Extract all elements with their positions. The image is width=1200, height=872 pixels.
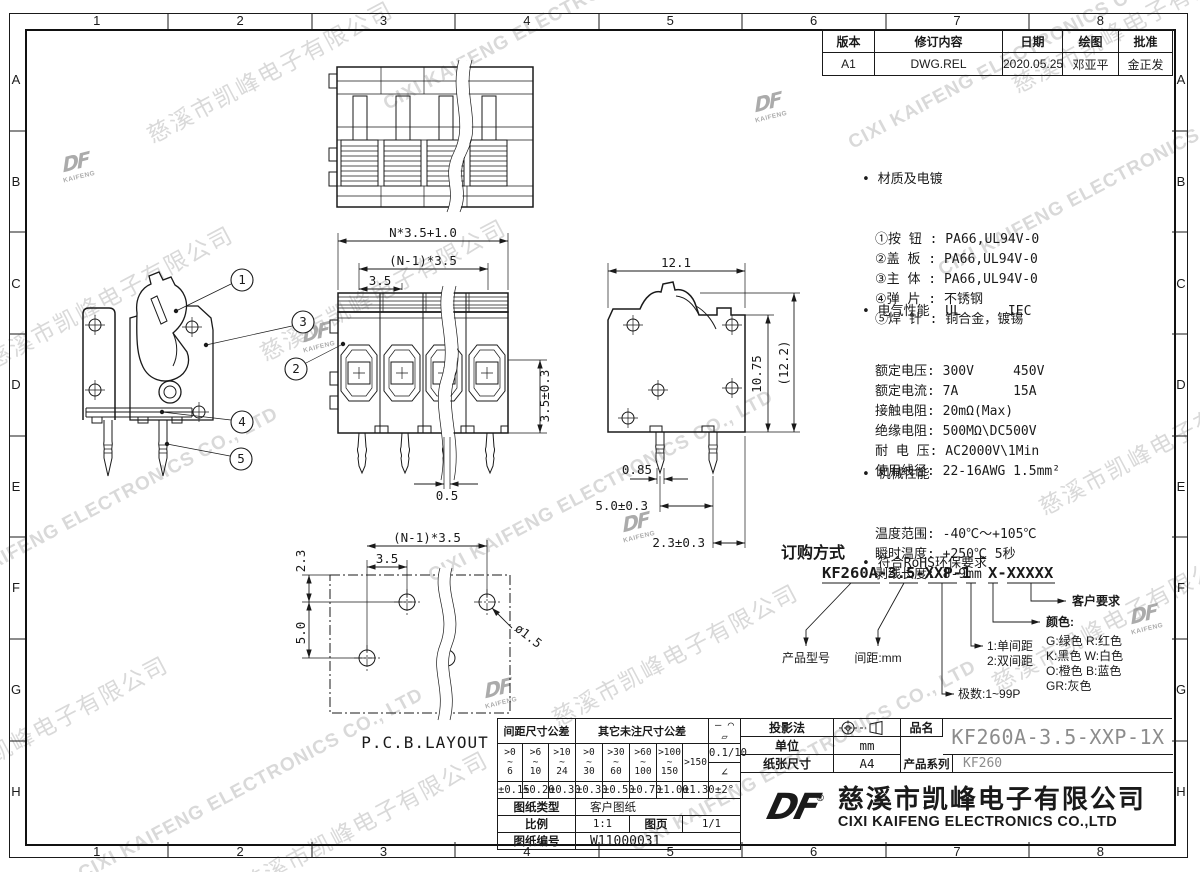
zone-col: 6 — [742, 12, 885, 28]
sheet-value: 1/1 — [683, 816, 741, 833]
part-name-label: 品名 — [901, 719, 943, 737]
zone-col: 2 — [168, 843, 311, 859]
range-cell: >100 ~ 150 — [657, 744, 683, 782]
zone-row: G — [8, 639, 24, 741]
part-number: KF260A-3.5-XXP-1X — [943, 719, 1173, 755]
zone-col: 3 — [312, 12, 455, 28]
grid-letters-left: ABCDEFGH — [8, 29, 24, 842]
mechanical-title: • 机械性能 — [862, 465, 1036, 485]
tol-value: ±0.30 — [576, 782, 603, 799]
zone-row: A — [1173, 29, 1189, 131]
zone-col: 5 — [599, 12, 742, 28]
paper-size-label: 纸张尺寸 — [741, 755, 834, 773]
first-angle-projection-icon — [838, 720, 896, 736]
range-cell: >0 ~ 30 — [576, 744, 603, 782]
range-cell: >10 ~ 24 — [549, 744, 576, 782]
rev-header-date: 日期 — [1003, 30, 1063, 53]
doc-type-value: 客户图纸 — [576, 799, 741, 816]
zone-col: 1 — [25, 12, 168, 28]
rev-approved-by: 金正发 — [1119, 53, 1173, 76]
zone-col: 7 — [885, 843, 1028, 859]
grid-numbers-top: 12345678 — [25, 12, 1172, 28]
electrical-title: • 电气性能 UL IEC — [862, 302, 1060, 322]
rev-header-version: 版本 — [823, 30, 875, 53]
df-logo-icon: DF — [764, 792, 821, 824]
zone-row: E — [8, 436, 24, 538]
zone-row: H — [1173, 740, 1189, 842]
rev-header-approved: 批准 — [1119, 30, 1173, 53]
projection-label: 投影法 — [741, 719, 834, 737]
company-logo: DF® — [768, 792, 824, 824]
zone-col: 1 — [25, 843, 168, 859]
projection-symbol-cell — [834, 719, 901, 737]
series-value: KF260 — [953, 755, 1173, 773]
rev-content: DWG.REL — [875, 53, 1003, 76]
drawing-sheet: 慈溪市凯峰电子有限公司 CIXI KAIFENG ELECTRONICS CO.… — [0, 0, 1200, 872]
other-tolerance-header: 其它未注尺寸公差 — [576, 719, 709, 744]
scale-value: 1:1 — [576, 816, 630, 833]
tol-value: ±0.70 — [630, 782, 657, 799]
rohs-line: • 符合RoHS环保要求 — [862, 554, 987, 574]
zone-row: C — [8, 232, 24, 334]
rev-header-content: 修订内容 — [875, 30, 1003, 53]
company-name-en: CIXI KAIFENG ELECTRONICS CO.,LTD — [838, 814, 1146, 830]
range-cell: >6 ~ 10 — [523, 744, 549, 782]
tol-value: ±1.30 — [683, 782, 709, 799]
doc-type-label: 图纸类型 — [498, 799, 576, 816]
company-block: DF® 慈溪市凯峰电子有限公司 CIXI KAIFENG ELECTRONICS… — [741, 773, 1173, 843]
zone-row: D — [1173, 334, 1189, 436]
range-cell: >60 ~ 100 — [630, 744, 657, 782]
rev-header-drawn: 绘图 — [1063, 30, 1119, 53]
tol-value: ±1.00 — [657, 782, 683, 799]
tol-value: ±0.20 — [523, 782, 549, 799]
rev-drawn-by: 邓亚平 — [1063, 53, 1119, 76]
zone-col: 8 — [1029, 12, 1172, 28]
zone-col: 8 — [1029, 843, 1172, 859]
drawing-number-value: W11000031 — [576, 833, 741, 850]
flatness-angle-cell: 0.1/10 ∠ — [709, 744, 741, 782]
zone-col: 3 — [312, 843, 455, 859]
zone-row: B — [1173, 131, 1189, 233]
zone-col: 2 — [168, 12, 311, 28]
unit-value: mm — [834, 737, 901, 755]
range-cell: >0 ~ 6 — [498, 744, 523, 782]
zone-col: 7 — [885, 12, 1028, 28]
rev-version: A1 — [823, 53, 875, 76]
zone-row: H — [8, 740, 24, 842]
zone-row: D — [8, 334, 24, 436]
pitch-tolerance-header: 间距尺寸公差 — [498, 719, 576, 744]
paper-size-value: A4 — [834, 755, 901, 773]
zone-row: B — [8, 131, 24, 233]
zone-row: F — [1173, 537, 1189, 639]
geometry-symbols: — ⌒ ▱ — [709, 719, 741, 744]
series-label: 产品系列 — [901, 755, 953, 773]
zone-row: F — [8, 537, 24, 639]
zone-row: G — [1173, 639, 1189, 741]
rohs-note: • 符合RoHS环保要求 — [862, 514, 987, 614]
zone-row: C — [1173, 232, 1189, 334]
grid-letters-right: ABCDEFGH — [1173, 29, 1189, 842]
zone-row: A — [8, 29, 24, 131]
zone-col: 4 — [455, 12, 598, 28]
revision-table: 版本 修订内容 日期 绘图 批准 A1 DWG.REL 2020.05.25 邓… — [822, 29, 1173, 76]
range-cell: >150 — [683, 744, 709, 782]
tol-value: ±0.50 — [603, 782, 630, 799]
tol-value: ±0.15 — [498, 782, 523, 799]
scale-label: 比例 — [498, 816, 576, 833]
zone-col: 6 — [742, 843, 885, 859]
flatness-value: 0.1/10 — [709, 744, 740, 763]
drawing-number-label: 图纸编号 — [498, 833, 576, 850]
range-cell: >30 ~ 60 — [603, 744, 630, 782]
company-name-cn: 慈溪市凯峰电子有限公司 — [838, 786, 1146, 813]
unit-label: 单位 — [741, 737, 834, 755]
tol-value: ±0.30 — [549, 782, 576, 799]
title-block: 投影法 品名 KF260A-3.5-XXP-1X 单位 mm 纸张尺寸 A4 产… — [740, 718, 1172, 842]
sheet-label: 图页 — [630, 816, 683, 833]
angle-icon: ∠ — [709, 763, 740, 781]
zone-row: E — [1173, 436, 1189, 538]
tolerance-table: 间距尺寸公差 其它未注尺寸公差 — ⌒ ▱ >0 ~ 6 >6 ~ 10 >10… — [497, 718, 741, 850]
material-title: • 材质及电镀 — [862, 170, 1039, 190]
rev-date: 2020.05.25 — [1003, 53, 1063, 76]
